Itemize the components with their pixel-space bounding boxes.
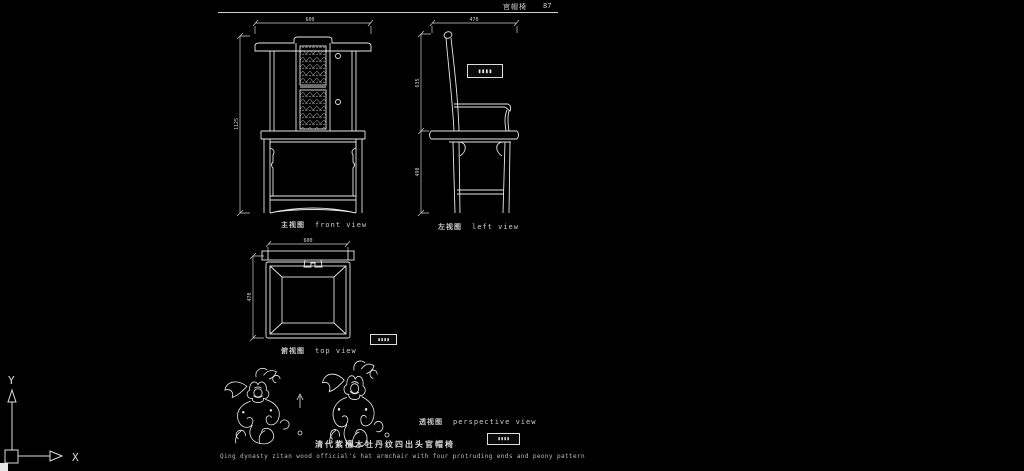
left-seat-height-dim: 490 <box>415 167 421 176</box>
view-label-top: 俯视图 top view <box>281 346 357 356</box>
watermark-stamp-top-view: ▮▮▮▮ <box>370 334 397 345</box>
top-dimensions <box>250 241 350 341</box>
left-view-label-cn: 左视图 <box>438 222 462 232</box>
cad-canvas[interactable]: 官帽椅 87 <box>0 0 1024 471</box>
view-label-perspective: 透视图 perspective view <box>419 417 536 427</box>
left-view-label-en: left view <box>472 223 519 231</box>
top-width-dim: 600 <box>303 238 312 244</box>
front-height-dim: 1125 <box>234 118 240 130</box>
drawing-title-en: Qing dynasty zitan wood official's hat a… <box>220 452 585 460</box>
view-label-front: 主视图 front view <box>281 220 367 230</box>
peony-pattern-left <box>225 368 303 443</box>
drawing-layer: 600 1125 <box>0 0 1024 471</box>
top-view-drawing: 600 470 <box>247 238 354 341</box>
front-width-dim: 600 <box>305 17 314 23</box>
top-view-label-en: top view <box>315 347 357 355</box>
watermark-stamp-left-view: ▮▮▮▮ <box>467 64 503 78</box>
front-view-label-en: front view <box>315 221 367 229</box>
ucs-y-label: Y <box>8 374 15 387</box>
peony-pattern-right <box>319 358 389 449</box>
front-view-label-cn: 主视图 <box>281 220 305 230</box>
top-depth-dim: 470 <box>247 292 253 301</box>
left-back-height-dim: 635 <box>415 78 421 87</box>
watermark-stamp-perspective: ▮▮▮▮ <box>487 433 520 445</box>
perspective-view-label-en: perspective view <box>453 418 536 426</box>
view-label-left: 左视图 left view <box>438 222 519 232</box>
ucs-icon: Y X <box>5 374 79 464</box>
corner-block <box>0 463 8 471</box>
front-view-drawing: 600 1125 <box>234 17 373 216</box>
perspective-view-label-cn: 透视图 <box>419 417 443 427</box>
left-depth-dim: 470 <box>469 17 478 23</box>
drawing-title-cn: 清代紫檀木牡丹纹四出头官帽椅 <box>315 439 455 450</box>
ucs-x-label: X <box>72 451 79 464</box>
left-view-drawing: 470 635 490 <box>415 17 519 216</box>
top-view-label-cn: 俯视图 <box>281 346 305 356</box>
